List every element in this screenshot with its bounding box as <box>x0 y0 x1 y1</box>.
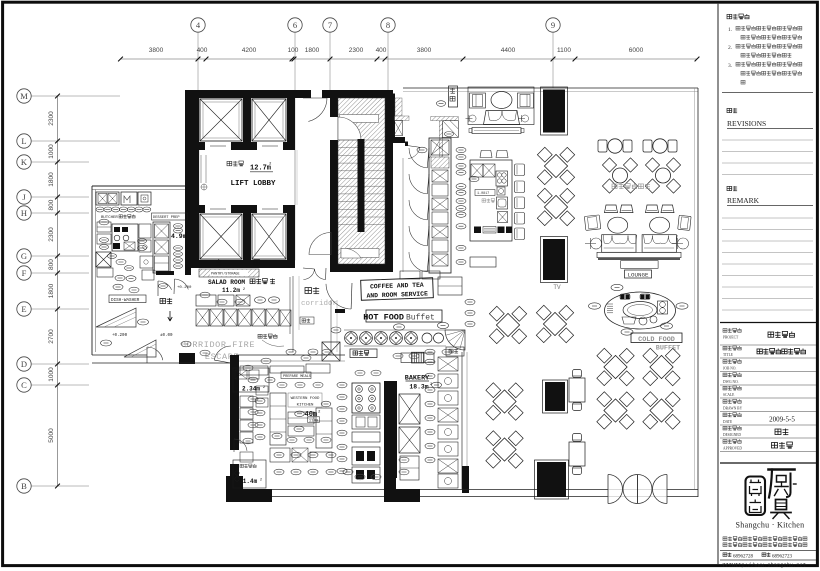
svg-text:DRAWN BY: DRAWN BY <box>723 406 743 410</box>
svg-text:2: 2 <box>260 479 262 483</box>
svg-text:1.: 1. <box>728 27 733 33</box>
svg-text:6000: 6000 <box>629 47 644 54</box>
svg-text:C: C <box>21 380 27 390</box>
svg-text:400: 400 <box>197 47 208 54</box>
svg-text:1100: 1100 <box>557 47 571 54</box>
svg-text:68962723: 68962723 <box>772 555 793 560</box>
svg-text:SALAD ROOM: SALAD ROOM <box>208 279 245 286</box>
svg-text:DESIGNED: DESIGNED <box>723 433 741 437</box>
svg-text:2.34m: 2.34m <box>242 386 260 393</box>
svg-text:6: 6 <box>293 20 297 30</box>
svg-text:TV: TV <box>553 284 561 291</box>
svg-text:2300: 2300 <box>48 111 55 126</box>
svg-text:CORRIDOR FIRE: CORRIDOR FIRE <box>181 340 255 350</box>
svg-text:68962728: 68962728 <box>733 555 754 560</box>
svg-text:800: 800 <box>48 199 55 210</box>
svg-text:4200: 4200 <box>242 47 257 54</box>
svg-text:777Http://www.shangchu.net: 777Http://www.shangchu.net <box>722 562 806 568</box>
svg-text:TITLE: TITLE <box>723 353 734 357</box>
svg-text:9: 9 <box>551 20 555 30</box>
svg-text:F: F <box>22 268 27 278</box>
svg-text:1800: 1800 <box>48 283 55 298</box>
svg-text:Buffet: Buffet <box>406 314 435 323</box>
svg-text:COLD FOOD: COLD FOOD <box>638 336 675 344</box>
svg-text:K: K <box>21 157 28 167</box>
svg-text:WESTERN FOOD: WESTERN FOOD <box>291 397 320 401</box>
svg-text:2700: 2700 <box>48 329 55 344</box>
svg-text:SCALE: SCALE <box>723 393 735 397</box>
svg-text:3800: 3800 <box>149 47 164 54</box>
svg-text:100: 100 <box>288 47 299 54</box>
svg-text:M: M <box>20 91 28 101</box>
svg-text:Shangchu · Kitchen: Shangchu · Kitchen <box>736 521 805 530</box>
svg-text:LOUNGE: LOUNGE <box>628 271 649 278</box>
svg-text:1-0817: 1-0817 <box>477 192 489 196</box>
svg-text:+0.200: +0.200 <box>112 334 128 338</box>
svg-text:5000: 5000 <box>48 428 55 443</box>
svg-text:2300: 2300 <box>48 227 55 242</box>
svg-text:18.3m: 18.3m <box>409 384 428 391</box>
svg-text:2.: 2. <box>728 45 733 51</box>
svg-text:1800: 1800 <box>305 47 320 54</box>
svg-text:REMARK: REMARK <box>727 196 760 205</box>
svg-text:PANTRY/STORAGE: PANTRY/STORAGE <box>211 272 240 277</box>
svg-text:+0.200: +0.200 <box>177 286 192 290</box>
svg-text:±0.00: ±0.00 <box>160 334 173 338</box>
svg-text:11.2m: 11.2m <box>222 287 240 294</box>
svg-text:2: 2 <box>263 386 265 390</box>
svg-text:APPROVED: APPROVED <box>723 446 742 450</box>
svg-text:corridor: corridor <box>301 300 337 308</box>
svg-text:H: H <box>21 208 27 218</box>
svg-text:8: 8 <box>386 20 390 30</box>
svg-text:800: 800 <box>48 259 55 270</box>
svg-text:BUFFET: BUFFET <box>656 345 680 353</box>
svg-text:DWG NO.: DWG NO. <box>723 380 739 384</box>
svg-text:2009-5-5: 2009-5-5 <box>769 416 795 424</box>
svg-text:JOB NO.: JOB NO. <box>723 366 736 370</box>
svg-text:E: E <box>21 304 26 314</box>
svg-text:D: D <box>21 359 27 369</box>
svg-text:KITCHEN: KITCHEN <box>297 404 314 408</box>
svg-text:2300: 2300 <box>349 47 364 54</box>
svg-text:1000: 1000 <box>48 367 55 382</box>
svg-text:HOT FOOD: HOT FOOD <box>363 313 404 323</box>
svg-text:DISH-WASHER: DISH-WASHER <box>111 298 140 303</box>
svg-text:G: G <box>21 251 27 261</box>
svg-text:DESSERT PREP: DESSERT PREP <box>153 216 180 220</box>
svg-text:1000: 1000 <box>48 144 55 159</box>
svg-text:PROJECT: PROJECT <box>723 335 739 339</box>
svg-text:2: 2 <box>243 288 245 292</box>
svg-text:PREPARE MEALS: PREPARE MEALS <box>283 375 311 379</box>
svg-text:400: 400 <box>376 47 387 54</box>
svg-text:1800: 1800 <box>48 172 55 187</box>
svg-text:L: L <box>21 136 26 146</box>
svg-text:DATE: DATE <box>723 420 733 424</box>
svg-text:REVISIONS: REVISIONS <box>727 119 766 128</box>
svg-text:12.7m: 12.7m <box>250 165 271 173</box>
svg-text:3800: 3800 <box>417 47 432 54</box>
svg-text:B: B <box>21 481 27 491</box>
svg-text:7: 7 <box>328 20 332 30</box>
svg-text:3.: 3. <box>728 63 733 69</box>
svg-text:LIFT LOBBY: LIFT LOBBY <box>230 180 276 188</box>
svg-text:4400: 4400 <box>501 47 516 54</box>
svg-text:1.4m: 1.4m <box>243 478 258 485</box>
